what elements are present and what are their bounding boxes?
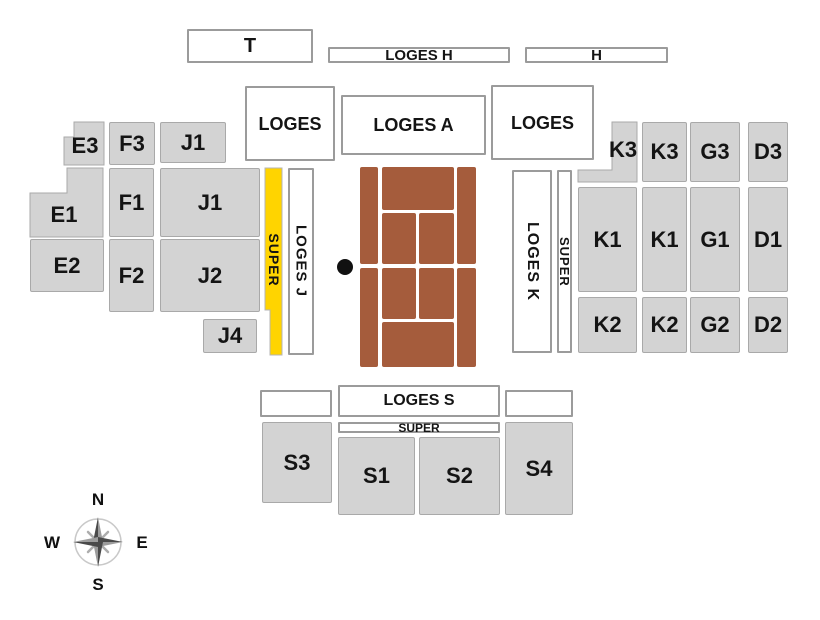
court-alley-left-south	[360, 268, 378, 367]
section-super-south[interactable]: SUPER	[338, 422, 500, 433]
section-s4[interactable]: S4	[505, 422, 573, 515]
section-label-d2: D2	[754, 314, 782, 336]
section-label-loges-s: LOGES S	[383, 393, 454, 409]
section-g3[interactable]: G3	[690, 122, 740, 182]
compass-east-label: E	[136, 533, 147, 552]
section-loges-nw[interactable]: LOGES	[245, 86, 335, 161]
section-label-g1: G1	[700, 229, 729, 251]
section-label-j4: J4	[218, 325, 242, 347]
compass-icon	[73, 517, 123, 567]
section-label-super-west: SUPER	[267, 233, 281, 286]
section-loge-s-west[interactable]	[260, 390, 332, 417]
section-label-f3: F3	[119, 133, 145, 155]
section-label-tribune-h: H	[591, 48, 602, 63]
net-post-dot	[337, 259, 353, 275]
section-s1[interactable]: S1	[338, 437, 415, 515]
section-label-e2: E2	[54, 255, 81, 277]
section-label-d3: D3	[754, 141, 782, 163]
section-tribune-t[interactable]: T	[187, 29, 313, 63]
section-label-s2: S2	[446, 465, 473, 487]
section-label-k3-west: K3	[609, 139, 637, 161]
section-loges-j[interactable]: LOGES J	[288, 168, 314, 355]
section-label-tribune-t: T	[244, 36, 256, 56]
section-label-loges-ne: LOGES	[511, 114, 574, 132]
section-label-loges-k: LOGES K	[524, 222, 540, 301]
section-label-f2: F2	[119, 265, 145, 287]
section-label-j2: J2	[198, 265, 222, 287]
section-label-g3: G3	[700, 141, 729, 163]
section-label-loges-a: LOGES A	[373, 116, 453, 134]
section-k1-east[interactable]: K1	[642, 187, 687, 292]
compass-west-label: W	[44, 533, 61, 552]
section-label-k3-east: K3	[650, 141, 678, 163]
section-j1[interactable]: J1	[160, 168, 260, 237]
section-label-s4: S4	[526, 458, 553, 480]
section-g1[interactable]: G1	[690, 187, 740, 292]
section-loge-s-east[interactable]	[505, 390, 573, 417]
section-label-j1-upper: J1	[181, 132, 205, 154]
section-label-loges-j: LOGES J	[294, 225, 309, 297]
section-d3[interactable]: D3	[748, 122, 788, 182]
compass-south-label: S	[92, 575, 103, 594]
section-j1-upper[interactable]: J1	[160, 122, 226, 163]
section-d1[interactable]: D1	[748, 187, 788, 292]
court-service-se	[419, 268, 454, 319]
section-label-k2-west: K2	[593, 314, 621, 336]
section-k2-west[interactable]: K2	[578, 297, 637, 353]
section-s3[interactable]: S3	[262, 422, 332, 503]
section-tribune-h[interactable]: H	[525, 47, 668, 63]
section-k1-west[interactable]: K1	[578, 187, 637, 292]
section-loges-ne[interactable]: LOGES	[491, 85, 594, 160]
section-label-e3: E3	[72, 135, 99, 157]
section-d2[interactable]: D2	[748, 297, 788, 353]
section-s2[interactable]: S2	[419, 437, 500, 515]
section-j2[interactable]: J2	[160, 239, 260, 312]
stadium-seating-map: N S W E TLOGES HHLOGESLOGES ALOGESE3F3J1…	[0, 0, 820, 620]
section-loges-s[interactable]: LOGES S	[338, 385, 500, 417]
section-label-d1: D1	[754, 229, 782, 251]
section-label-s1: S1	[363, 465, 390, 487]
court-alley-right-north	[457, 167, 476, 264]
section-loges-k[interactable]: LOGES K	[512, 170, 552, 353]
section-label-g2: G2	[700, 314, 729, 336]
section-k2-east[interactable]: K2	[642, 297, 687, 353]
section-j4[interactable]: J4	[203, 319, 257, 353]
court-alley-right-south	[457, 268, 476, 367]
section-f1[interactable]: F1	[109, 168, 154, 237]
section-label-s3: S3	[284, 452, 311, 474]
court-service-ne	[419, 213, 454, 264]
section-label-k1-west: K1	[593, 229, 621, 251]
court-backcourt-south	[382, 322, 454, 367]
section-label-super-east: SUPER	[558, 237, 571, 287]
section-label-loges-h: LOGES H	[385, 48, 453, 63]
section-label-f1: F1	[119, 192, 145, 214]
section-f3[interactable]: F3	[109, 122, 155, 165]
court-backcourt-north	[382, 167, 454, 210]
section-label-e1: E1	[51, 204, 78, 226]
section-loges-h[interactable]: LOGES H	[328, 47, 510, 63]
court-service-sw	[382, 268, 416, 319]
section-e2[interactable]: E2	[30, 239, 104, 292]
section-label-loges-nw: LOGES	[258, 115, 321, 133]
section-label-super-south: SUPER	[398, 422, 439, 434]
section-loges-a[interactable]: LOGES A	[341, 95, 486, 155]
section-g2[interactable]: G2	[690, 297, 740, 353]
section-super-east[interactable]: SUPER	[557, 170, 572, 353]
section-f2[interactable]: F2	[109, 239, 154, 312]
section-label-j1: J1	[198, 192, 222, 214]
section-label-k1-east: K1	[650, 229, 678, 251]
section-label-k2-east: K2	[650, 314, 678, 336]
court-service-nw	[382, 213, 416, 264]
section-k3-east[interactable]: K3	[642, 122, 687, 182]
compass-north-label: N	[92, 490, 104, 509]
court-alley-left-north	[360, 167, 378, 264]
